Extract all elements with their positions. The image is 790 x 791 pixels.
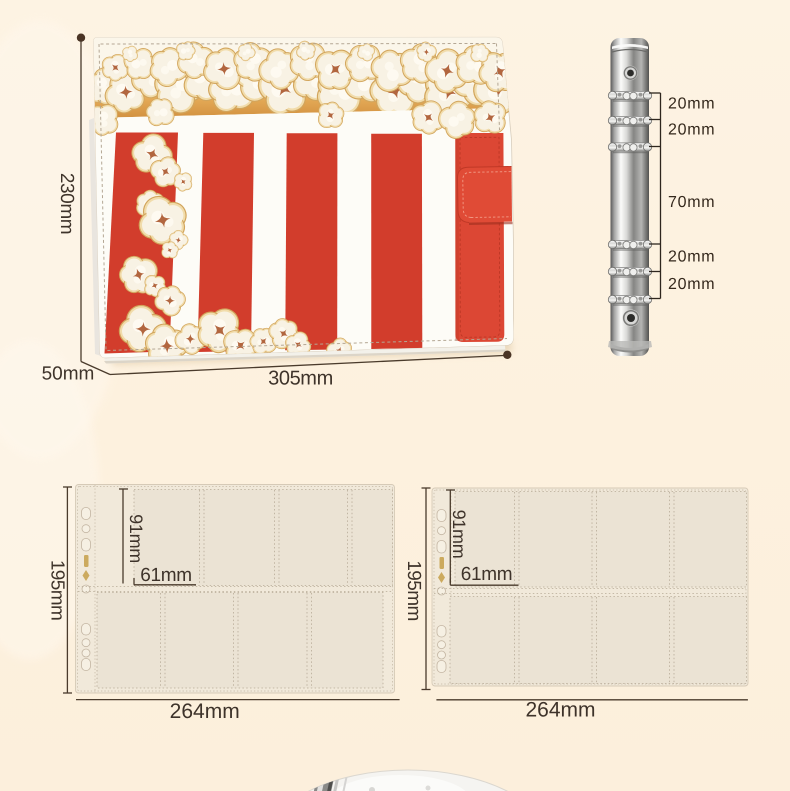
svg-text:50mm: 50mm (42, 364, 95, 385)
svg-text:91mm: 91mm (126, 514, 146, 563)
svg-text:91mm: 91mm (449, 510, 469, 559)
svg-text:20mm: 20mm (668, 96, 715, 113)
svg-text:70mm: 70mm (668, 194, 715, 211)
svg-text:61mm: 61mm (461, 564, 513, 585)
svg-text:20mm: 20mm (668, 122, 715, 139)
svg-text:20mm: 20mm (668, 276, 715, 293)
svg-text:264mm: 264mm (525, 699, 595, 722)
svg-text:61mm: 61mm (140, 565, 192, 586)
svg-text:264mm: 264mm (170, 700, 240, 723)
svg-text:195mm: 195mm (47, 560, 68, 620)
svg-text:230mm: 230mm (56, 173, 77, 234)
svg-text:305mm: 305mm (268, 368, 333, 390)
svg-text:195mm: 195mm (403, 560, 424, 620)
svg-text:20mm: 20mm (668, 249, 715, 266)
